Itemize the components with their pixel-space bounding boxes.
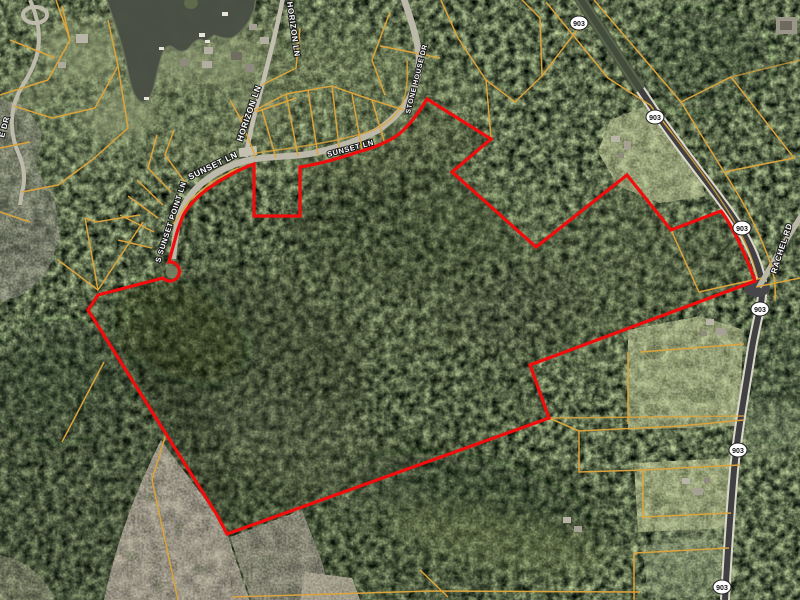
svg-text:903: 903 [716, 585, 728, 592]
svg-text:903: 903 [573, 21, 585, 28]
svg-text:903: 903 [732, 448, 744, 455]
svg-text:903: 903 [754, 307, 766, 314]
svg-text:903: 903 [649, 115, 661, 122]
svg-text:903: 903 [736, 226, 748, 233]
